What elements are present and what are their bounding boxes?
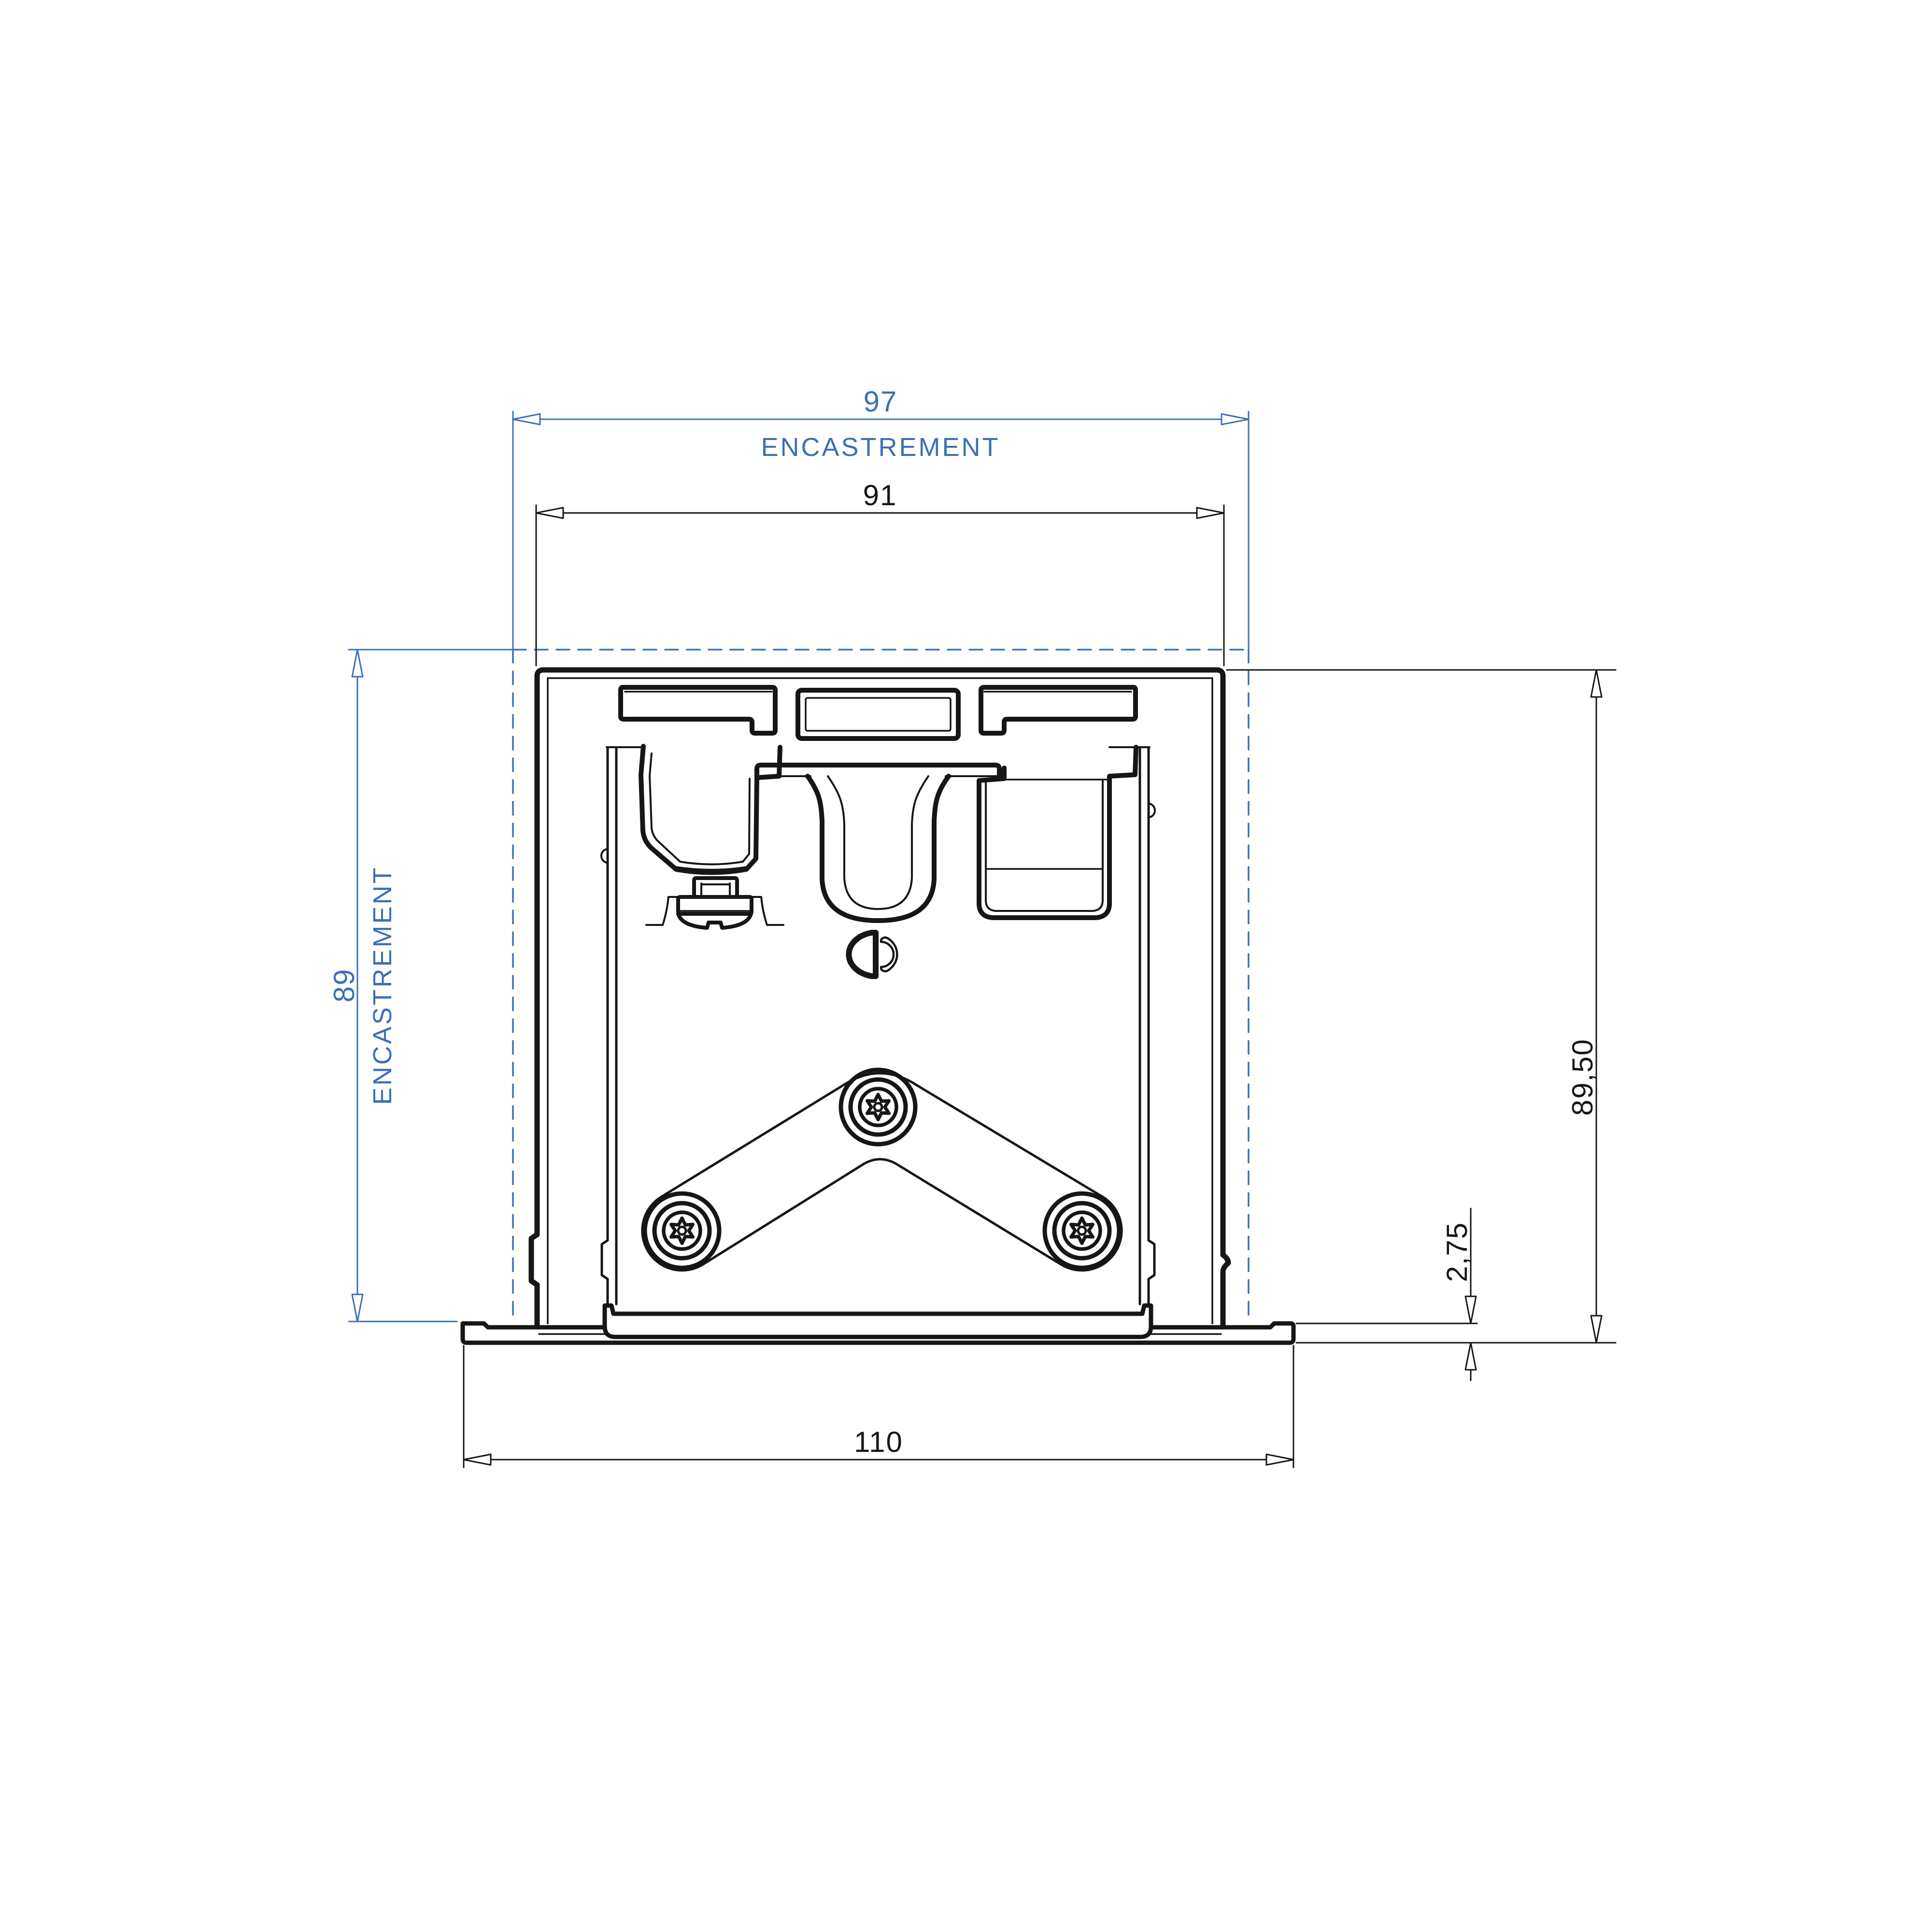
profile-section [463, 670, 1293, 1343]
clamp-right-wing [752, 897, 783, 925]
dim-value: 97 [864, 385, 898, 418]
arrow-down-icon [1591, 1316, 1602, 1343]
dim-label: ENCASTREMENT [761, 433, 1000, 462]
right-cup-inner [986, 780, 1103, 911]
right-cup-seat-line [980, 780, 1108, 869]
clamp-dome [678, 914, 751, 928]
dim-overall-width: 110 [464, 1346, 1293, 1467]
dim-value: 110 [854, 1426, 903, 1458]
right-cup-outer [979, 747, 1136, 918]
top-rail [621, 687, 1136, 739]
dim-profile-width: 91 [536, 479, 1224, 666]
dim-value: 2,75 [1441, 1222, 1473, 1282]
dim-recess-depth: 89 ENCASTREMENT [328, 650, 513, 1321]
center-hook-inner [828, 776, 928, 909]
dim-overall-height: 89,50 [1227, 670, 1616, 1343]
arrow-left-icon [464, 1454, 491, 1465]
arrow-up-icon [1465, 1343, 1476, 1370]
dim-value: 89,50 [1566, 1038, 1599, 1116]
extension-lines [536, 505, 1224, 666]
keyhole-d-shape [849, 933, 876, 976]
keyhole-cutout [849, 933, 897, 976]
arrow-right-icon [1222, 414, 1249, 425]
floor-plate-outline [605, 1306, 1151, 1337]
housing-top-face [537, 670, 1223, 676]
dim-label: ENCASTREMENT [368, 866, 397, 1105]
floor-plate [605, 1306, 1151, 1337]
outer-housing [531, 670, 1228, 1324]
housing-right-wall [1223, 675, 1228, 1324]
dim-flange-thickness: 2,75 [1296, 1208, 1477, 1380]
left-wall-outer-line [602, 748, 608, 1304]
extension-lines [1227, 670, 1616, 1343]
housing-left-wall [531, 675, 537, 1324]
dim-value: 89 [328, 968, 360, 1003]
rail-right-slab [981, 687, 1136, 733]
rail-left-slab [621, 687, 775, 733]
keyhole-crescent [881, 938, 897, 971]
arrow-up-icon [352, 650, 363, 677]
arrow-up-icon [1591, 670, 1602, 697]
technical-drawing: 97 ENCASTREMENT 91 89 ENCASTREMENT 89,50… [0, 0, 1932, 1932]
dim-value: 91 [863, 479, 897, 511]
chevron-bracket [642, 1070, 1122, 1270]
center-hook-outer [808, 776, 949, 921]
arrow-right-icon [1197, 508, 1224, 518]
arrow-left-icon [536, 508, 563, 518]
dim-recess-width: 97 ENCASTREMENT [513, 385, 1249, 650]
clamp-screw [646, 878, 783, 928]
arrow-right-icon [1266, 1454, 1293, 1465]
left-cup-inner [650, 753, 750, 865]
arrow-down-icon [352, 1294, 363, 1321]
clamp-left-wing [646, 897, 678, 925]
arrow-left-icon [513, 414, 540, 425]
right-wall-outer-line [1149, 748, 1154, 1304]
arrow-down-icon [1465, 1296, 1476, 1323]
